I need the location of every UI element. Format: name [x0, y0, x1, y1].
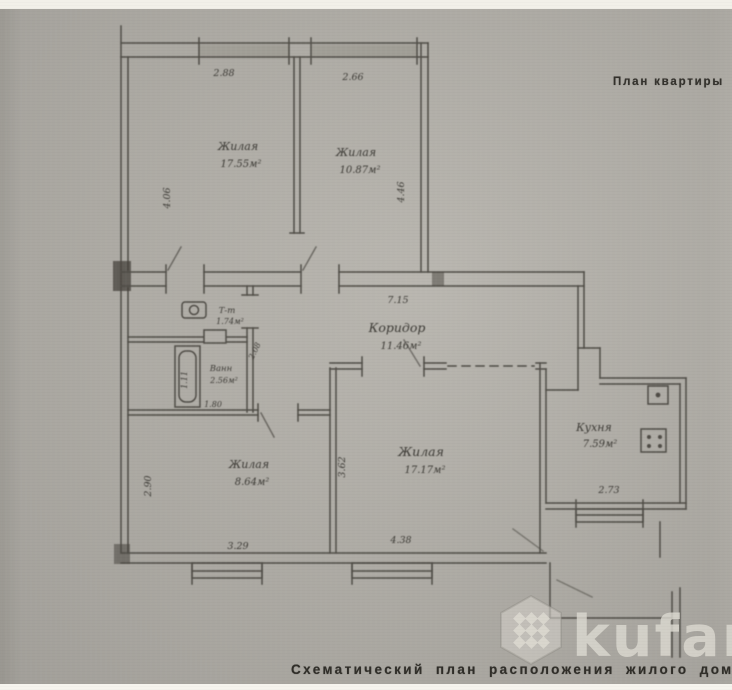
room-label: Т-т [219, 306, 236, 316]
dimension: 1.80 [204, 400, 222, 409]
room-area: 17.55м² [221, 159, 262, 170]
room-labels: Жилая 17.55м² Жилая 10.87м² Коридор 11.4… [209, 140, 618, 488]
kitchen-window-symbol [576, 500, 643, 527]
room-area: 2.56м² [209, 376, 238, 385]
wall-pier [114, 544, 130, 564]
bedroom-divider-wall [290, 57, 304, 233]
room-label: Ванн [209, 364, 233, 374]
dimension: 2.08 [246, 341, 262, 362]
stove-icon [641, 429, 666, 452]
bottom-caption: Схематический план расположения жилого д… [291, 662, 732, 677]
right-upper-wall [421, 43, 428, 272]
small-bedroom-right-wall [330, 368, 336, 553]
room-area: 7.59м² [583, 439, 618, 450]
room-area: 17.17м² [405, 465, 446, 476]
left-exterior-wall [113, 57, 131, 564]
dimension: 2.73 [597, 485, 619, 496]
corridor-right-wall [578, 272, 584, 348]
dimension: 3.62 [337, 456, 348, 477]
living-kitchen-wall [540, 363, 546, 553]
sink-icon [648, 386, 668, 404]
corridor-top-wall [121, 247, 584, 293]
room-area: 10.87м² [340, 165, 381, 176]
dimension: 2.90 [143, 475, 154, 497]
room-label: Жилая [397, 444, 444, 459]
room-area: 8.64м² [235, 477, 270, 488]
room-area: 1.74м² [216, 317, 244, 326]
wall-pier [432, 272, 444, 286]
toilet-icon [182, 302, 206, 318]
door-leaf [168, 247, 181, 270]
dimension: 7.15 [387, 295, 408, 306]
top-exterior-wall [121, 26, 428, 64]
bottom-exterior-wall [121, 529, 546, 584]
window-symbol [199, 45, 289, 56]
door-leaf [261, 413, 274, 437]
balcony-outline [550, 522, 680, 657]
room-label: Жилая [228, 458, 269, 471]
dimension: 2.66 [341, 72, 363, 83]
door-symbol [204, 330, 226, 343]
room-label: Коридор [368, 320, 426, 335]
room-label: Жилая [335, 146, 376, 159]
scanned-floor-plan-photo: План квартиры [0, 0, 732, 690]
dimension: 3.29 [227, 541, 248, 552]
dimension: 4.38 [389, 535, 411, 546]
room-label: Жилая [217, 140, 258, 153]
door-leaf [303, 247, 316, 270]
room-label: Кухня [575, 421, 612, 434]
window-symbol [311, 45, 417, 56]
dimension-labels: 2.88 2.66 4.06 4.46 7.15 1.11 2.08 1.80 … [143, 68, 620, 552]
dimension: 4.06 [162, 187, 173, 209]
dimension: 2.88 [212, 68, 234, 79]
floor-plan-drawing: Жилая 17.55м² Жилая 10.87м² Коридор 11.4… [0, 0, 732, 690]
living-room-top-wall [330, 340, 546, 376]
room-area: 11.46м² [381, 341, 422, 352]
dimension: 4.46 [396, 181, 407, 203]
dimension: 1.11 [180, 371, 189, 389]
